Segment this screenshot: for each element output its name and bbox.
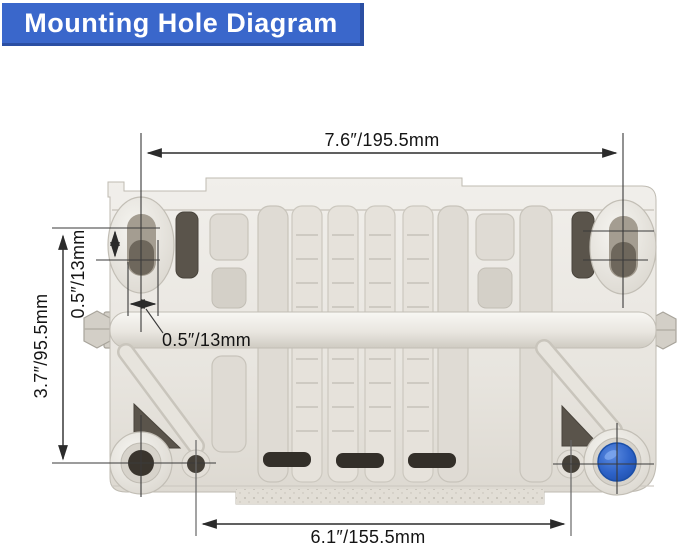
channel — [212, 356, 246, 452]
product-diagram-image: 7.6″/195.5mm 0.5″/13mm 3.7″/95.5mm 0.5″/… — [0, 0, 679, 547]
mounting-diagram: 7.6″/195.5mm 0.5″/13mm 3.7″/95.5mm 0.5″/… — [0, 0, 679, 547]
bottom-slot-3 — [408, 453, 456, 468]
dim-label-overall-width: 7.6″/195.5mm — [324, 130, 439, 150]
pocket — [210, 214, 248, 260]
cast-texture-strip — [236, 489, 544, 504]
dim-label-slot-offset: 0.5″/13mm — [68, 229, 88, 318]
bottom-slot-1 — [263, 452, 311, 467]
bottom-slot-2 — [336, 453, 384, 468]
dim-label-hole-spacing: 6.1″/155.5mm — [310, 527, 425, 547]
page-title: Mounting Hole Diagram — [24, 8, 338, 39]
title-banner: Mounting Hole Diagram — [2, 3, 364, 46]
pocket — [476, 214, 514, 260]
pocket — [478, 268, 512, 308]
dark-pocket-left — [176, 212, 198, 278]
dim-label-slot-width: 0.5″/13mm — [162, 330, 251, 350]
pocket — [212, 268, 246, 308]
dim-label-mount-height: 3.7″/95.5mm — [31, 294, 51, 399]
